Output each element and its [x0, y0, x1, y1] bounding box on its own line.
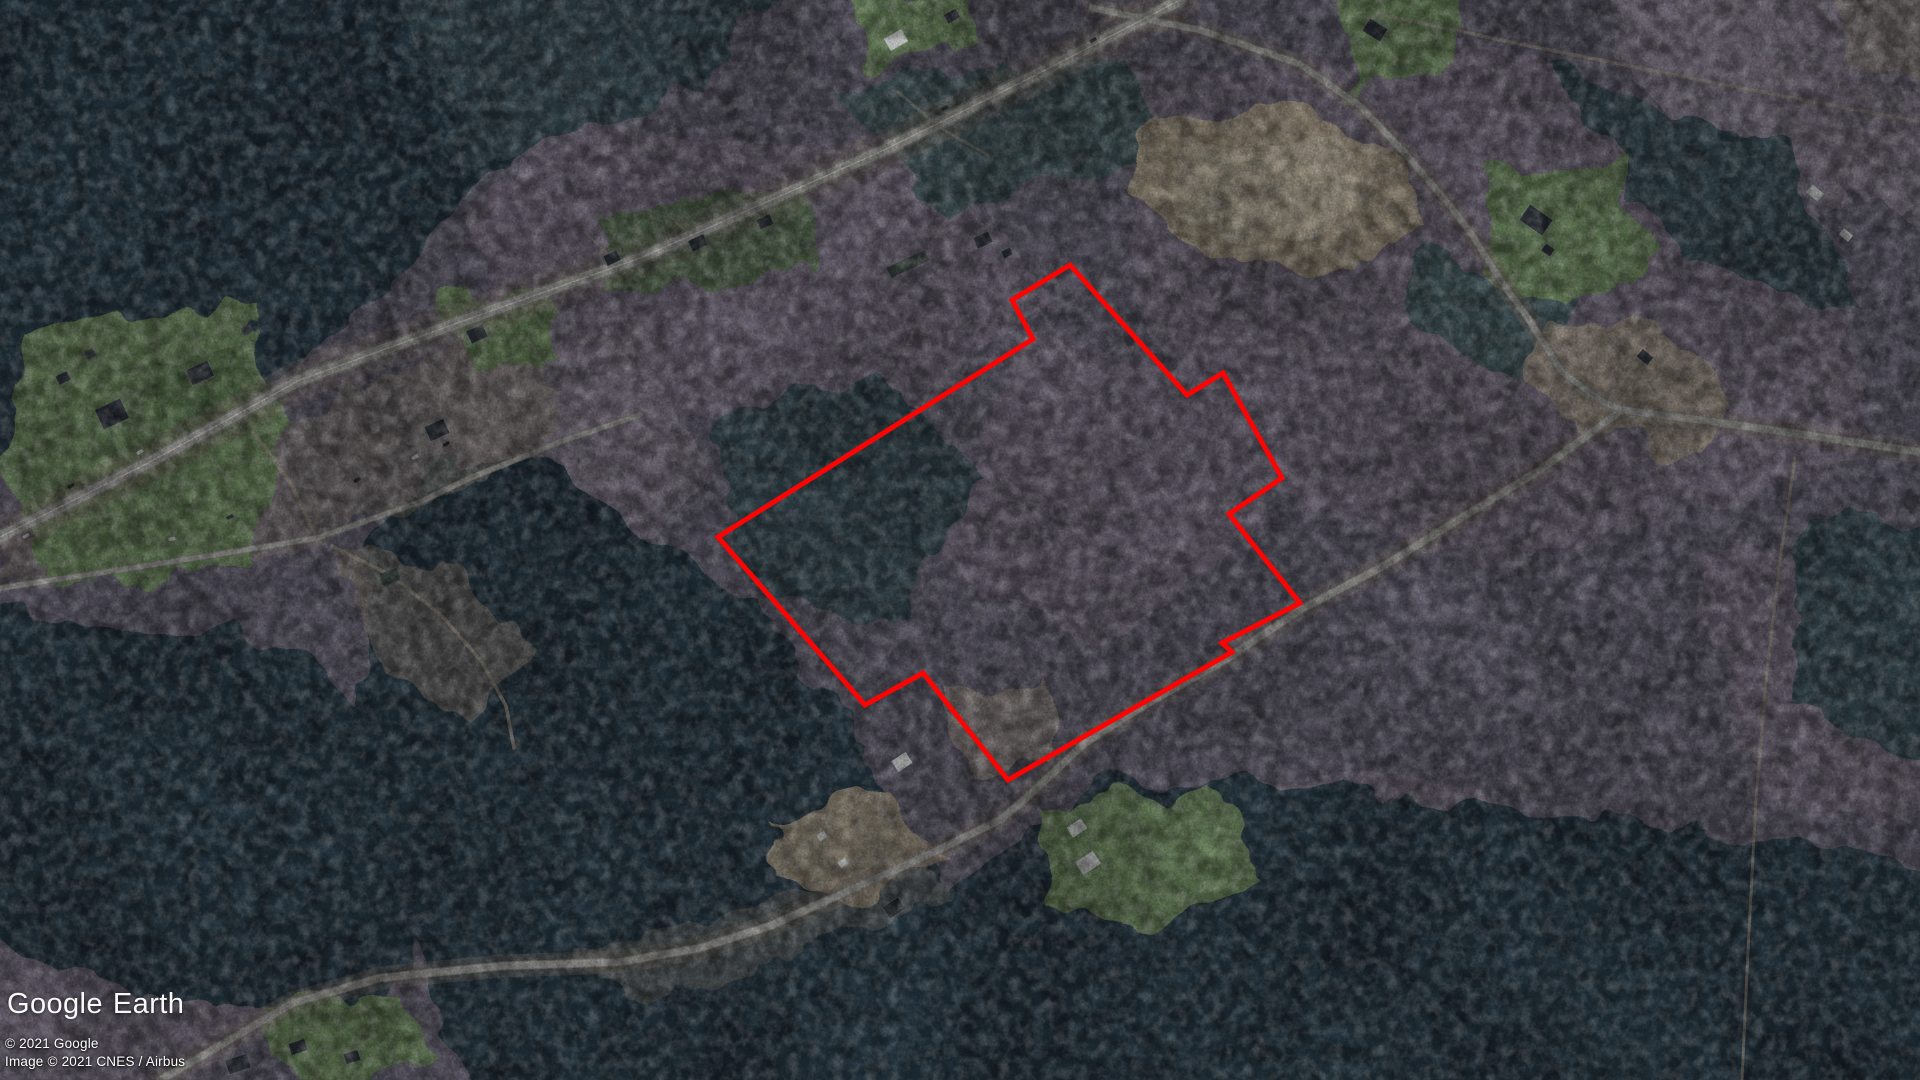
map-attribution: © 2021 Google Image © 2021 CNES / Airbus	[5, 1035, 185, 1071]
logo-earth: Earth	[113, 988, 184, 1020]
satellite-scene[interactable]	[0, 0, 1920, 1080]
google-earth-logo: GoogleEarth	[7, 990, 184, 1019]
copyright-google: © 2021 Google	[5, 1035, 185, 1053]
texture-speckle	[0, 0, 1920, 1080]
logo-google: Google	[7, 988, 103, 1020]
google-earth-canvas[interactable]: GoogleEarth © 2021 Google Image © 2021 C…	[0, 0, 1920, 1080]
copyright-imagery: Image © 2021 CNES / Airbus	[5, 1053, 185, 1071]
